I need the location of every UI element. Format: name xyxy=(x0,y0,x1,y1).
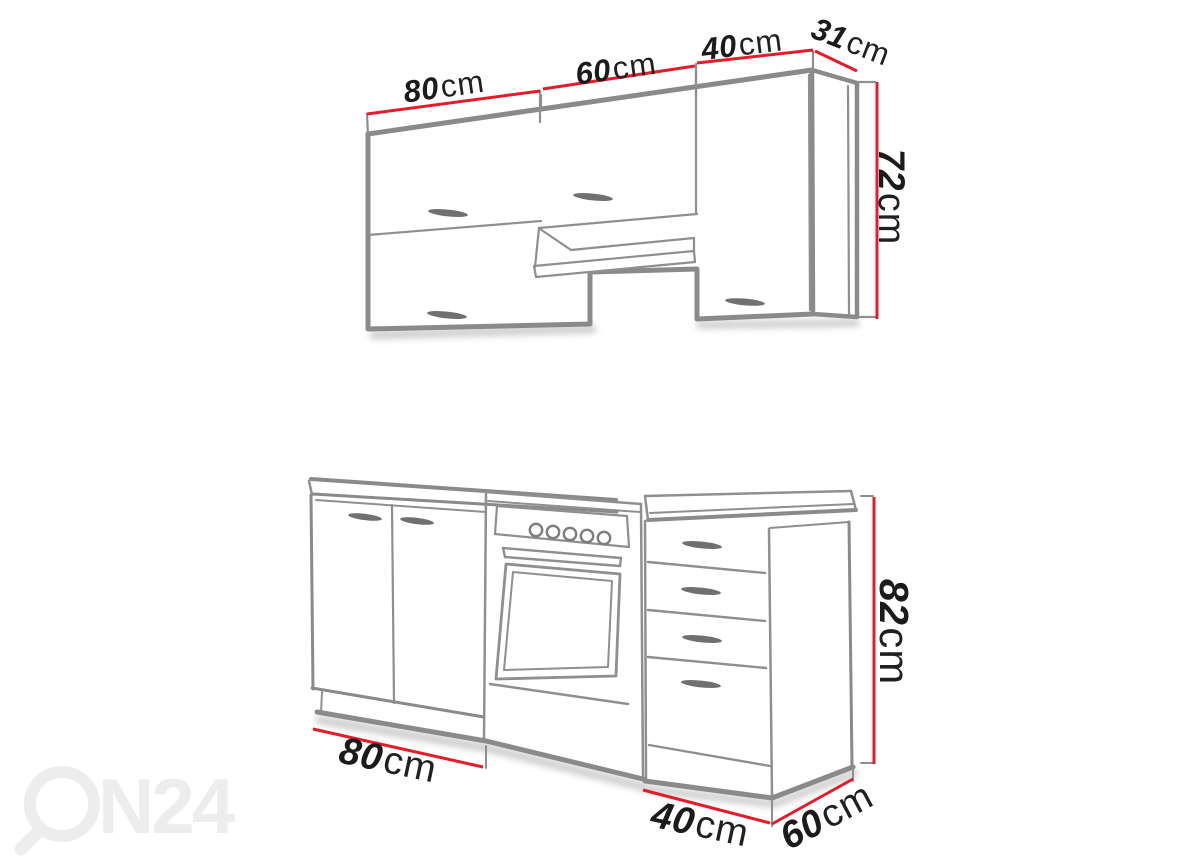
cooker-knobs xyxy=(530,524,610,544)
dimension-label-lower-height-82: 82cm xyxy=(873,579,915,685)
magnifier-handle-icon xyxy=(21,830,40,849)
knob-icon xyxy=(547,526,559,538)
watermark-logo: N24 xyxy=(21,762,235,850)
knob-icon xyxy=(598,532,610,544)
dimension-label-upper-height-72: 72cm xyxy=(872,149,910,245)
cooker-drawing xyxy=(484,492,643,778)
oven-door-window xyxy=(504,572,612,670)
knob-icon xyxy=(564,528,576,540)
product-dimension-diagram: N24 80cm 60cm 40cm 31cm 72cm 82cm 80cm 4… xyxy=(0,0,1200,859)
handle-icon xyxy=(348,512,383,522)
knob-icon xyxy=(530,524,542,536)
knob-icon xyxy=(581,530,593,542)
handle-icon xyxy=(400,516,435,526)
handle-icon xyxy=(681,586,721,597)
left-base-cabinet xyxy=(311,495,486,717)
handle-icon xyxy=(682,540,722,551)
handle-icon xyxy=(681,679,721,690)
wall-cabinet-side-panel xyxy=(812,70,857,317)
oven-door-frame xyxy=(496,564,620,679)
oven-handle-bar xyxy=(503,548,621,566)
handle-icon xyxy=(682,634,722,645)
oven-bottom-drawer-line xyxy=(490,684,628,704)
line-art-canvas: N24 xyxy=(0,0,1200,859)
watermark-text: N24 xyxy=(98,762,235,850)
right-worktop xyxy=(645,491,856,520)
drawer-cabinet xyxy=(645,521,852,796)
